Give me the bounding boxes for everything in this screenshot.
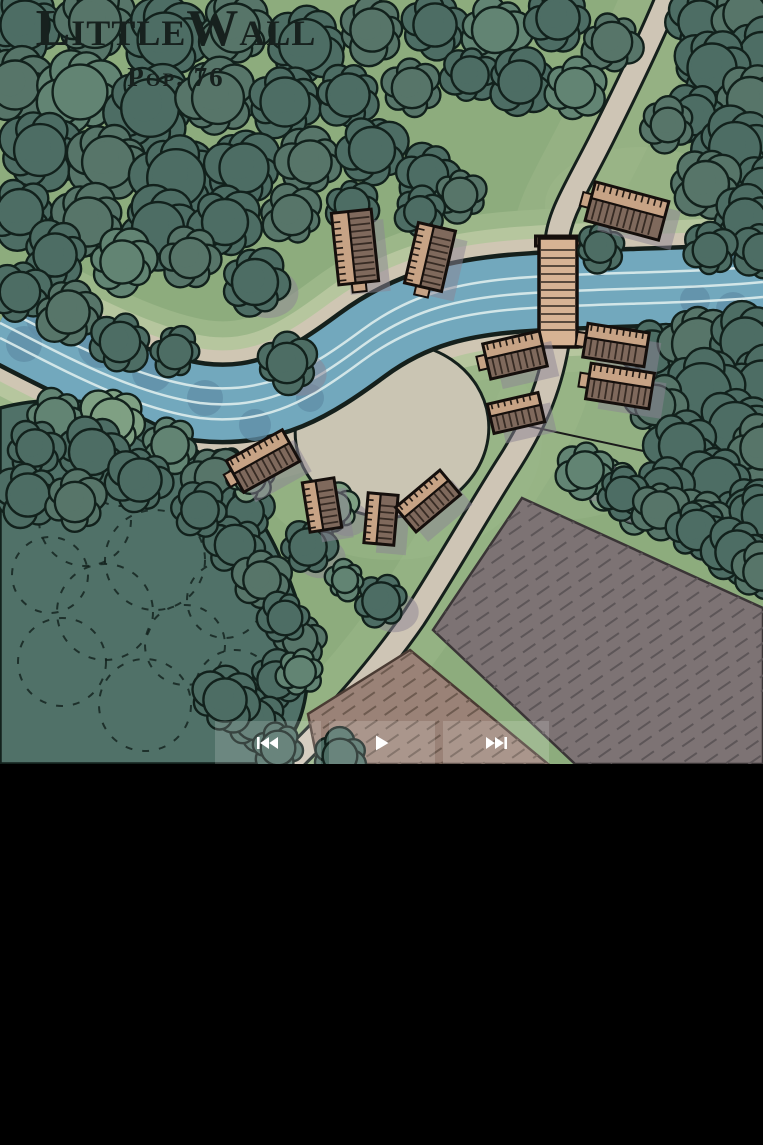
map-viewport: LittleWall Pop. 76 bbox=[0, 0, 763, 764]
bridge bbox=[536, 236, 581, 347]
tree-cluster bbox=[684, 222, 738, 274]
letterbox-bottom bbox=[0, 764, 763, 1145]
skip-start-icon bbox=[256, 736, 280, 750]
house bbox=[364, 493, 398, 545]
play-icon bbox=[375, 735, 389, 751]
house bbox=[331, 209, 379, 294]
skip-end-button[interactable] bbox=[443, 721, 549, 764]
village-map-canvas bbox=[0, 0, 763, 764]
skip-end-icon bbox=[484, 736, 508, 750]
playback-controls bbox=[215, 721, 549, 764]
tree-cluster bbox=[733, 224, 763, 278]
tree-cluster bbox=[171, 482, 226, 537]
play-button[interactable] bbox=[329, 721, 435, 764]
tree-cluster bbox=[491, 47, 554, 116]
skip-start-button[interactable] bbox=[215, 721, 321, 764]
house bbox=[302, 478, 341, 532]
